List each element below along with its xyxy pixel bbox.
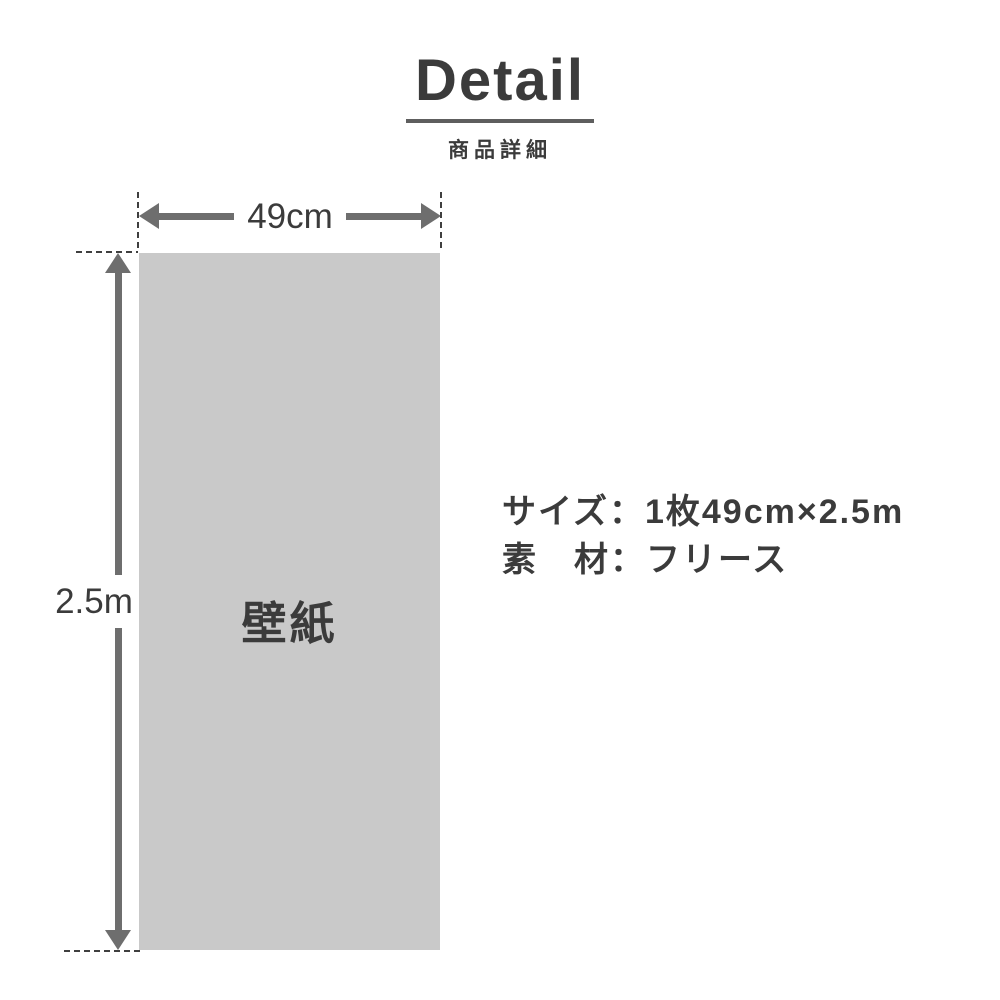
arrow-up-icon — [105, 253, 131, 273]
guide-dashed-bottom-left — [64, 950, 140, 952]
section-title: Detail — [0, 52, 1000, 110]
arrow-left-icon — [139, 203, 159, 229]
arrow-right-icon — [421, 203, 441, 229]
width-label: 49cm — [234, 199, 346, 234]
height-dimension: 2.5m — [105, 253, 131, 950]
guide-dashed-left — [137, 192, 139, 252]
guide-dashed-top-left — [76, 251, 138, 253]
width-dimension-line — [159, 213, 234, 220]
width-dimension-line — [346, 213, 421, 220]
guide-dashed-right — [440, 192, 442, 252]
section-header: Detail 商品詳細 — [0, 52, 1000, 164]
spec-material: 素 材：フリース — [502, 536, 904, 584]
height-dimension-line — [115, 273, 122, 575]
title-underline — [406, 119, 594, 123]
width-dimension: 49cm — [139, 203, 441, 229]
spec-list: サイズ：1枚49cm×2.5m 素 材：フリース — [502, 488, 904, 584]
product-detail-figure: Detail 商品詳細 壁紙 49cm 2.5m サイズ：1枚49cm×2.5m… — [0, 0, 1000, 1000]
wallpaper-panel: 壁紙 — [139, 253, 440, 950]
height-dimension-line — [115, 628, 122, 930]
wallpaper-panel-label: 壁紙 — [241, 587, 337, 652]
spec-size: サイズ：1枚49cm×2.5m — [502, 488, 904, 536]
section-subtitle: 商品詳細 — [0, 134, 1000, 164]
arrow-down-icon — [105, 930, 131, 950]
height-label: 2.5m — [55, 575, 133, 628]
